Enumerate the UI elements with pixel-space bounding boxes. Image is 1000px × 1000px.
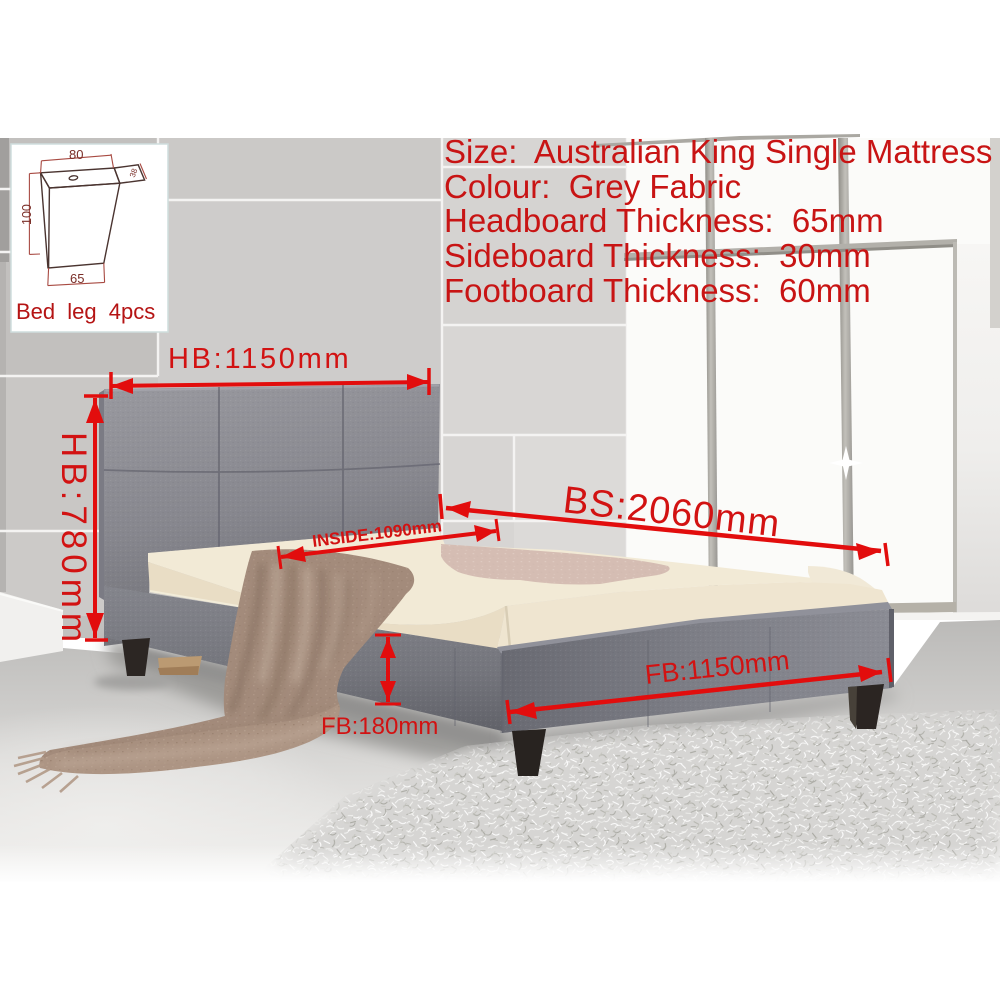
svg-text:Footboard Thickness: 60mm: Footboard Thickness: 60mm [444, 272, 871, 309]
svg-text:Colour: Grey Fabric: Colour: Grey Fabric [444, 168, 741, 205]
svg-text:100: 100 [20, 204, 34, 225]
svg-text:Bed leg 4pcs: Bed leg 4pcs [16, 299, 155, 324]
svg-text:80: 80 [69, 147, 83, 162]
svg-text:FB:180mm: FB:180mm [321, 713, 438, 740]
svg-text:65: 65 [70, 271, 84, 286]
svg-text:Headboard Thickness: 65mm: Headboard Thickness: 65mm [444, 202, 884, 239]
svg-text:Sideboard Thickness: 30mm: Sideboard Thickness: 30mm [444, 237, 871, 274]
svg-text:Size: Australian King Single: Size: Australian King Single Mattress [444, 133, 992, 170]
svg-text:HB:1150mm: HB:1150mm [168, 343, 351, 375]
svg-text:HB:780mm: HB:780mm [54, 432, 93, 647]
